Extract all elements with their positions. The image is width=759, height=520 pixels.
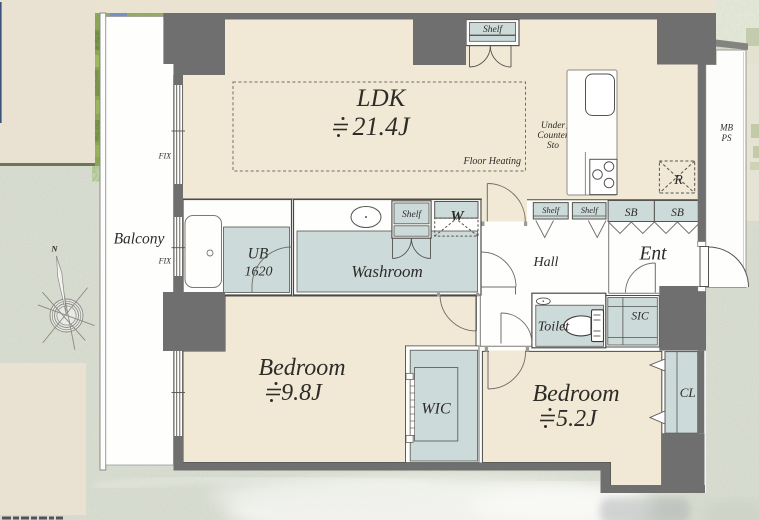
svg-text:FIX: FIX [158, 257, 173, 266]
svg-text:5.2J: 5.2J [556, 406, 598, 432]
svg-text:SB: SB [625, 207, 638, 219]
svg-text:Floor Heating: Floor Heating [463, 156, 522, 167]
svg-text:SB: SB [671, 207, 684, 219]
svg-text:Counter: Counter [537, 131, 568, 141]
svg-text:21.4J: 21.4J [352, 112, 411, 141]
svg-text:Toilet: Toilet [538, 320, 570, 335]
svg-text:1620: 1620 [245, 265, 273, 280]
svg-text:9.8J: 9.8J [281, 380, 323, 406]
svg-text:FIX: FIX [158, 152, 173, 161]
svg-text:Shelf: Shelf [402, 209, 422, 220]
svg-text:Bedroom: Bedroom [258, 355, 345, 381]
svg-text:W: W [450, 209, 465, 225]
svg-text:UB: UB [248, 246, 269, 263]
svg-text:Bedroom: Bedroom [532, 381, 619, 407]
svg-text:CL: CL [680, 385, 696, 400]
svg-text:Hall: Hall [533, 255, 559, 270]
svg-text:LDK: LDK [356, 85, 407, 112]
svg-text:Balcony: Balcony [114, 231, 165, 248]
svg-text:Washroom: Washroom [351, 262, 422, 281]
svg-text:Sto: Sto [547, 141, 559, 151]
svg-text:Shelf: Shelf [581, 205, 600, 215]
svg-text:WIC: WIC [421, 401, 451, 418]
svg-text:Under: Under [541, 121, 566, 131]
svg-text:MB: MB [719, 123, 733, 133]
svg-text:PS: PS [721, 133, 732, 143]
svg-text:Ent: Ent [638, 244, 667, 265]
svg-text:R: R [673, 173, 683, 188]
svg-text:N: N [50, 244, 58, 254]
svg-text:SIC: SIC [631, 311, 649, 323]
svg-text:Shelf: Shelf [542, 205, 561, 215]
svg-text:Shelf: Shelf [483, 24, 503, 35]
